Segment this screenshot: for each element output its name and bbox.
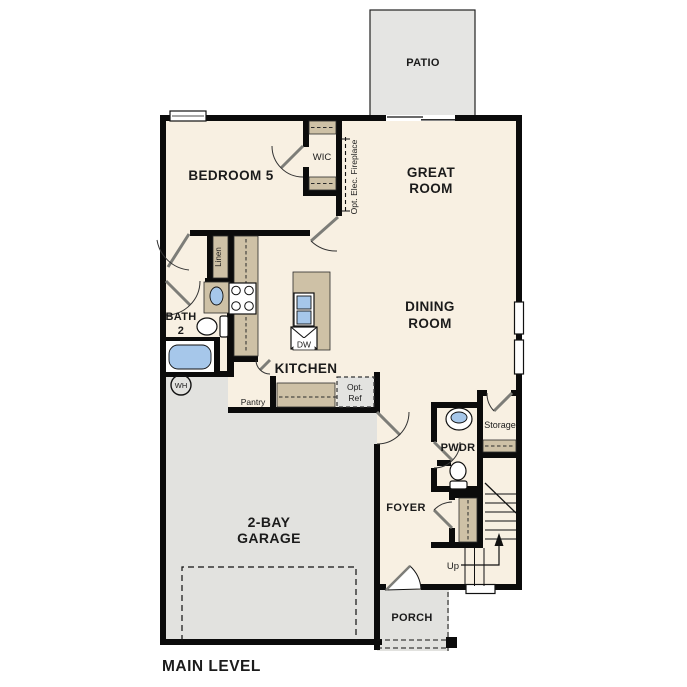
pwdr-toilet-bowl	[450, 462, 466, 480]
storage-label: Storage	[484, 420, 516, 430]
wall-segment	[374, 590, 380, 650]
wall-segment	[160, 639, 382, 645]
floor-plan-page: PATIO BEDROOM 5 WIC Opt. Elec. Fireplace…	[0, 0, 687, 687]
bath2-label-line1: BATH	[166, 311, 197, 323]
wall-segment	[477, 390, 483, 548]
great-room-label-line2: ROOM	[409, 181, 453, 196]
sink-basin	[297, 311, 311, 324]
dining-room-label-line1: DINING	[405, 299, 455, 314]
wall-segment	[228, 356, 258, 362]
wall-segment	[303, 121, 309, 147]
opt-ref-label-line1: Opt.	[347, 382, 363, 392]
window	[515, 340, 524, 374]
window	[466, 585, 495, 594]
wall-segment	[511, 390, 522, 396]
stairs-up-label: Up	[447, 561, 459, 572]
garage-label-line1: 2-BAY	[248, 514, 291, 530]
wall-segment	[207, 236, 213, 280]
main-level-title: MAIN LEVEL	[162, 658, 261, 675]
great-room-label-line1: GREAT	[407, 165, 456, 180]
sink-basin	[297, 296, 311, 309]
dishwasher-label: DW	[297, 340, 311, 350]
wall-segment	[270, 376, 276, 407]
burner-icon	[232, 302, 241, 311]
wall-segment	[431, 402, 477, 408]
pantry-label: Pantry	[241, 397, 266, 407]
wic-label: WIC	[313, 152, 332, 163]
wall-segment	[431, 402, 437, 442]
garage-label-line2: GARAGE	[237, 530, 301, 546]
opt-ref-label-line2: Ref	[348, 393, 362, 403]
wall-segment	[477, 452, 517, 458]
burner-icon	[245, 302, 254, 311]
floor-plan-drawing: PATIO BEDROOM 5 WIC Opt. Elec. Fireplace…	[0, 0, 687, 687]
porch-label: PORCH	[391, 612, 432, 624]
burner-icon	[245, 286, 254, 295]
foyer-label: FOYER	[386, 502, 425, 514]
bathtub	[169, 345, 211, 369]
window	[515, 302, 524, 334]
porch-post	[446, 637, 457, 648]
water-heater-label: WH	[175, 381, 188, 390]
wall-segment	[449, 528, 455, 542]
wall-segment	[336, 115, 342, 216]
bath2-sink	[210, 287, 223, 305]
wall-segment	[431, 542, 483, 548]
wall-segment	[374, 372, 380, 412]
wall-segment	[190, 230, 310, 236]
garage-floor	[166, 377, 377, 639]
bath2-label-line2: 2	[178, 325, 184, 337]
kitchen-counter	[277, 383, 335, 407]
wall-segment	[449, 492, 455, 500]
pwdr-sink-basin	[451, 412, 467, 423]
wall-segment	[228, 407, 380, 413]
bath2-toilet-bowl	[197, 318, 217, 335]
wall-segment	[374, 444, 380, 590]
bath2-toilet-tank	[220, 316, 228, 337]
dining-room-label-line2: ROOM	[408, 316, 452, 331]
linen-label: Linen	[214, 247, 223, 267]
wall-segment	[303, 190, 342, 196]
burner-icon	[232, 286, 241, 295]
fireplace-label: Opt. Elec. Fireplace	[349, 139, 359, 214]
wall-segment	[160, 115, 166, 645]
kitchen-label: KITCHEN	[275, 361, 338, 376]
pwdr-toilet-tank	[450, 481, 467, 489]
pwdr-label: PWDR	[441, 442, 476, 454]
patio-label: PATIO	[406, 57, 440, 69]
bedroom5-label: BEDROOM 5	[188, 168, 273, 183]
